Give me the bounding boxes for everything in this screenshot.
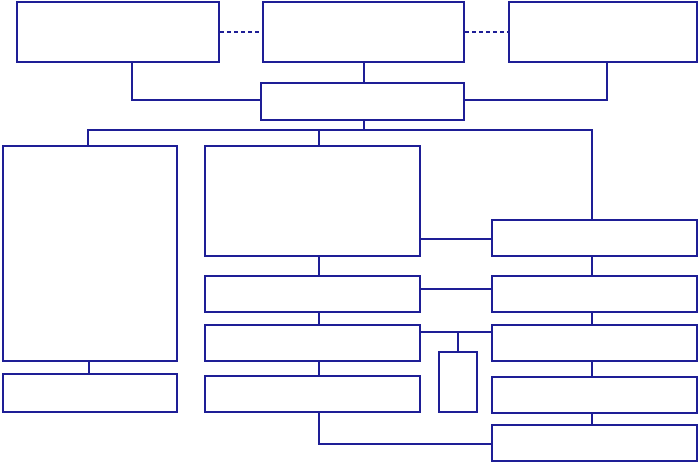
top-center-box — [262, 1, 465, 63]
midlarge-midrow2-connector — [318, 255, 320, 277]
dash-topcenter-topright-connector — [465, 31, 508, 33]
right-row4-box — [491, 376, 698, 414]
bottom-run-to-right5-connector — [318, 443, 493, 445]
hub-box — [260, 82, 465, 121]
topleft-drop-connector — [131, 62, 133, 101]
midrow2-rightrow2-connector — [419, 288, 493, 290]
midrow3-rightrow3-connector — [419, 331, 493, 333]
left-large-box — [2, 145, 178, 362]
right-row1-box — [491, 219, 698, 257]
rightrow1-rightrow2-connector — [591, 255, 593, 277]
drop-to-right-row1-connector — [591, 129, 593, 221]
drop-to-small-vertical-connector — [457, 331, 459, 353]
top-right-box — [508, 1, 698, 63]
topcenter-drop-connector — [363, 62, 365, 83]
small-vertical-box — [438, 351, 478, 413]
right-row5-box — [491, 424, 698, 462]
midlarge-rightrow1-connector — [419, 238, 493, 240]
distribution-line-connector — [87, 129, 593, 131]
topleft-to-hub-connector — [131, 99, 262, 101]
mid-row4-box — [204, 375, 421, 413]
right-row3-box — [491, 324, 698, 362]
dash-topleft-topcenter-connector — [220, 31, 262, 33]
mid-row2-box — [204, 275, 421, 313]
topright-to-hub-connector — [463, 99, 608, 101]
flowchart-canvas — [0, 0, 700, 465]
topright-drop-connector — [606, 62, 608, 101]
mid-large-box — [204, 145, 421, 257]
midrow4-drop-connector — [318, 411, 320, 445]
right-row2-box — [491, 275, 698, 313]
left-bottom-box — [2, 373, 178, 413]
mid-row3-box — [204, 324, 421, 362]
top-left-box — [16, 1, 220, 63]
